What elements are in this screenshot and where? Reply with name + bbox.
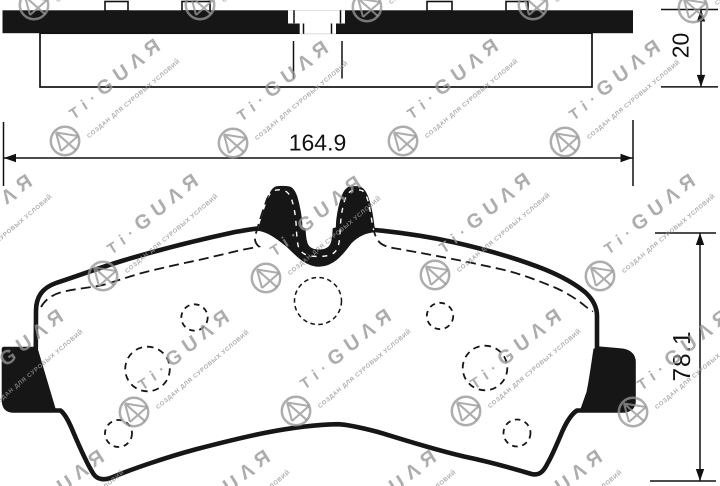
- svg-text:20: 20: [668, 33, 694, 59]
- svg-text:164.9: 164.9: [289, 130, 347, 156]
